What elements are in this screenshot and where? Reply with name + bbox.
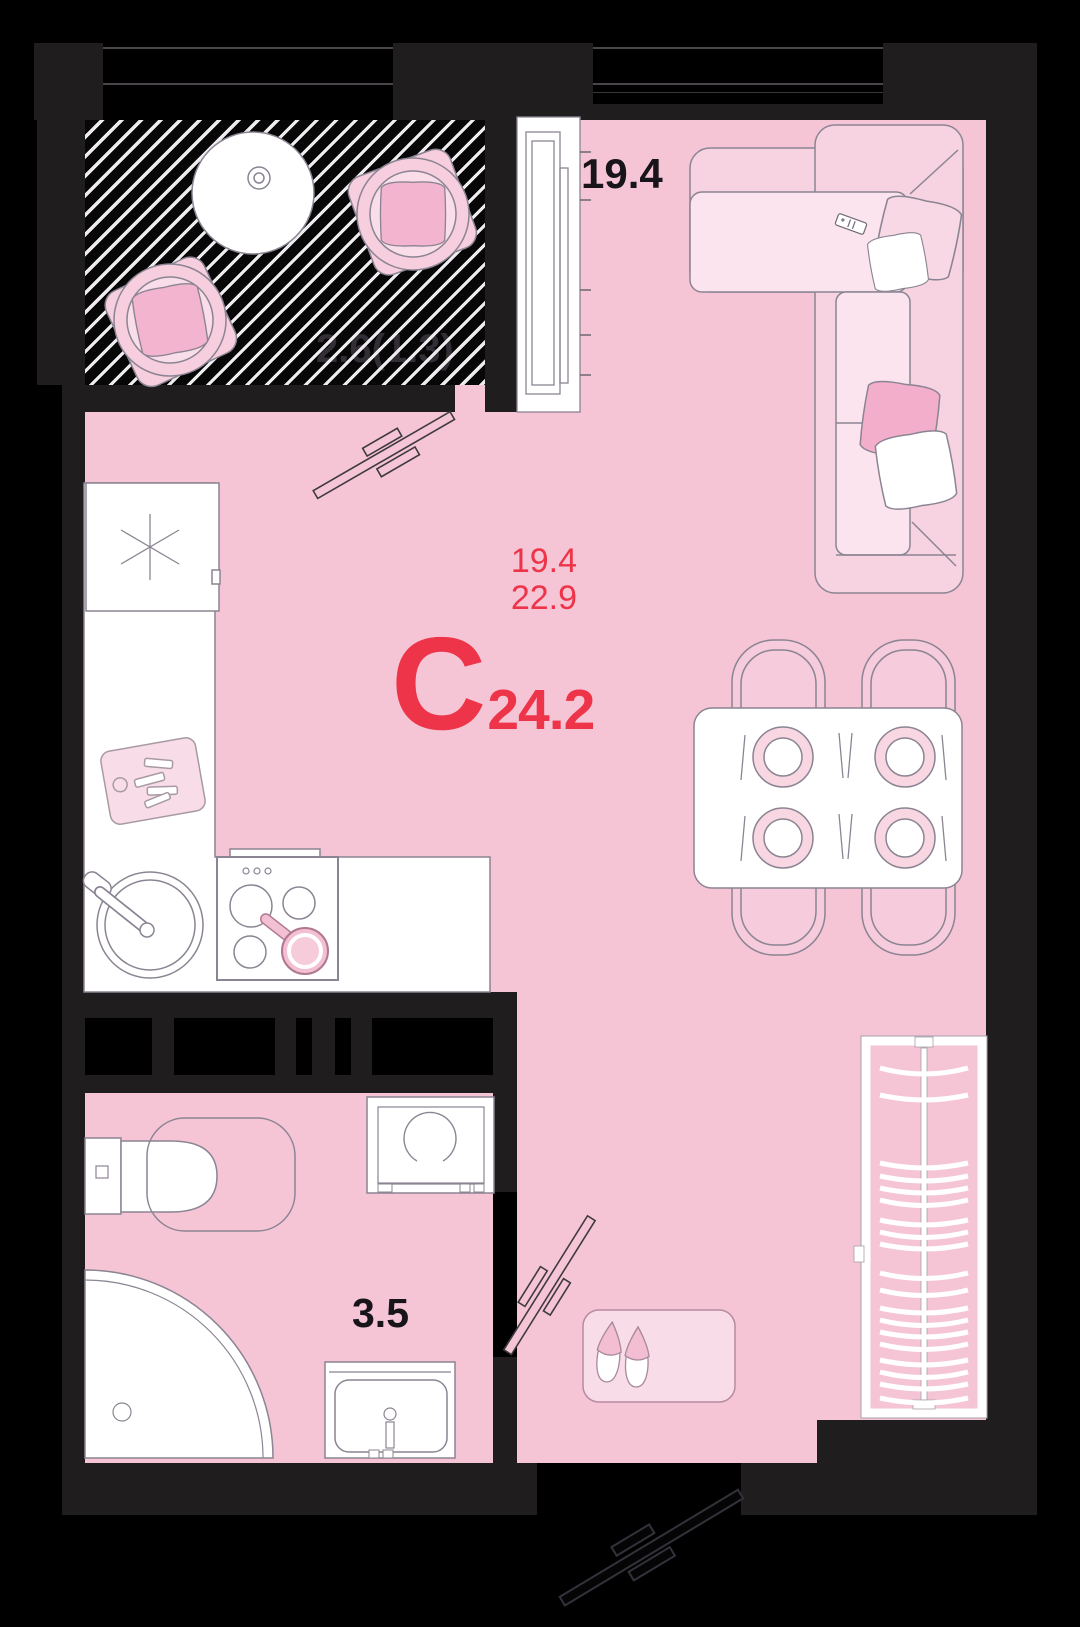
toilet <box>85 1118 295 1231</box>
washing-machine <box>367 1097 494 1193</box>
balcony-table <box>192 132 314 254</box>
stove <box>217 849 338 980</box>
balcony-chair <box>341 142 485 286</box>
unit-area-stack: 19.4 22.9 <box>511 543 577 617</box>
doormat <box>583 1310 735 1402</box>
entrance-door-swing <box>551 1476 750 1617</box>
balcony-window <box>517 117 591 412</box>
fridge <box>86 483 220 611</box>
bathroom-area-label: 3.5 <box>352 1293 409 1334</box>
furniture-layer <box>0 0 1080 1627</box>
unit-type-letter: С <box>391 630 483 738</box>
balcony-door-swing <box>307 401 461 509</box>
dining-table <box>694 708 962 888</box>
unit-area-with-balcony: 22.9 <box>511 580 577 617</box>
cutting-board <box>99 736 206 826</box>
unit-type-label: С 24.2 <box>391 630 594 743</box>
bathroom-sink <box>325 1362 455 1458</box>
wardrobe <box>854 1036 987 1418</box>
living-room-area-label: 19.4 <box>581 153 663 195</box>
balcony-chair <box>96 246 245 395</box>
unit-total-area: 24.2 <box>487 677 594 743</box>
floorplan-canvas: 2.6(1.3) <box>0 0 1080 1627</box>
shower <box>85 1270 273 1458</box>
unit-living-area: 19.4 <box>511 543 577 580</box>
sofa <box>690 125 963 593</box>
